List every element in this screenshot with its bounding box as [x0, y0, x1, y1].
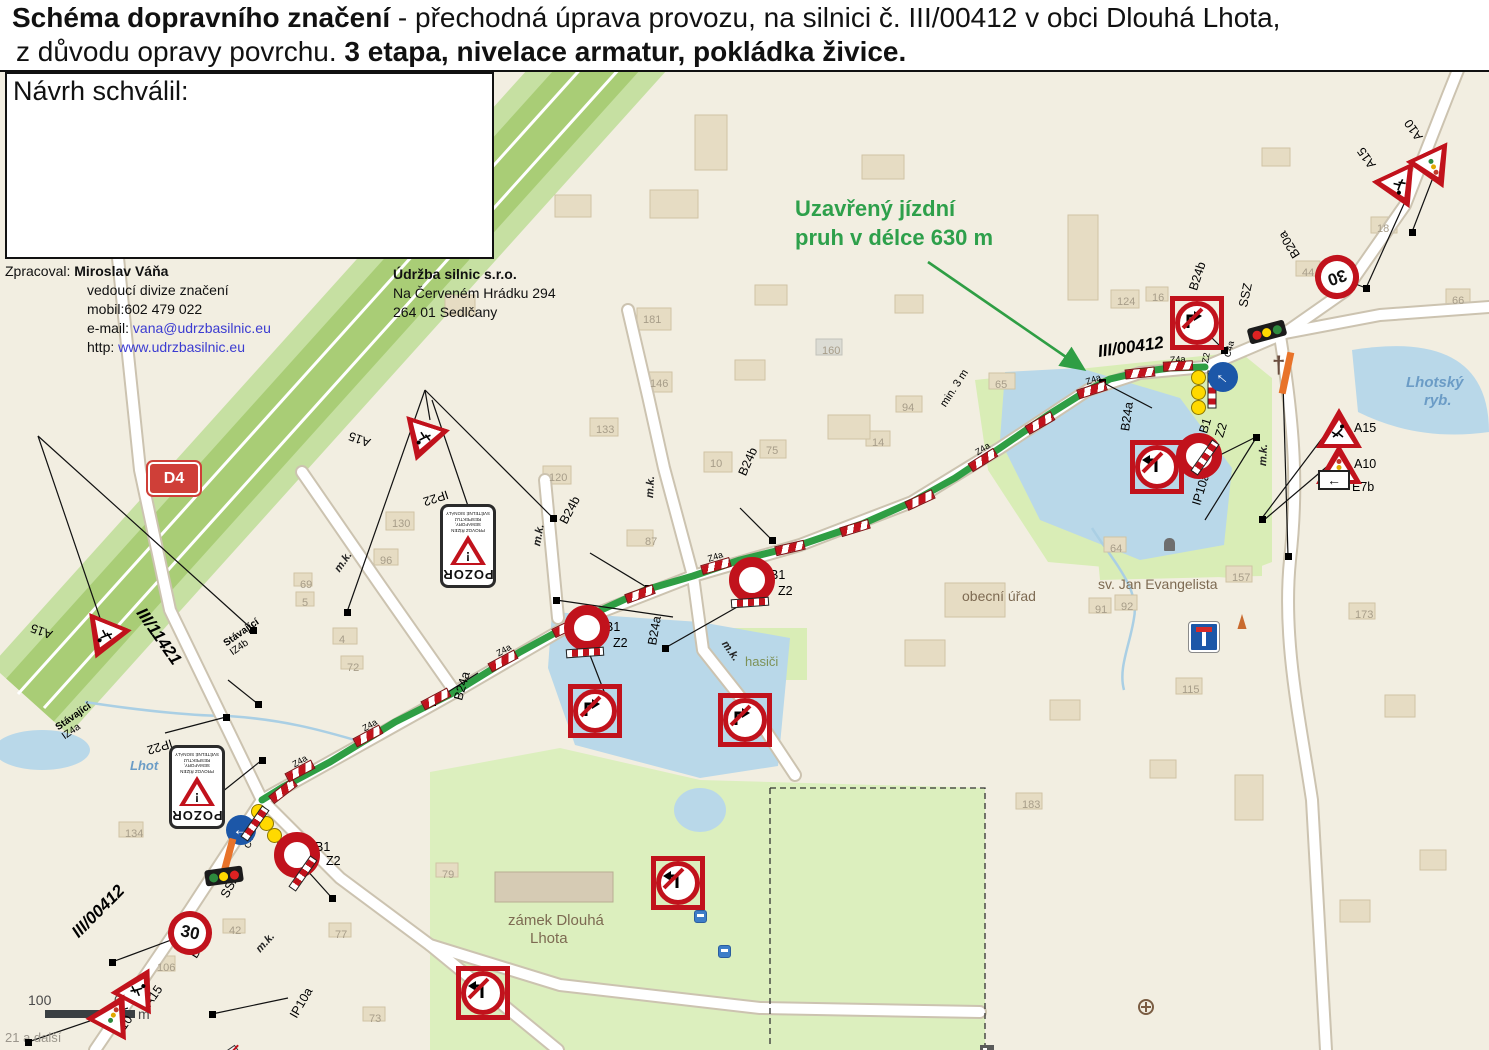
- sign-ip10a: [1189, 622, 1219, 652]
- company-block: Údržba silnic s.r.o. Na Červeném Hrádku …: [393, 265, 556, 322]
- roadworks-icon: [1330, 424, 1348, 438]
- arrow-icon: ←: [1327, 472, 1341, 488]
- church-icon: [1138, 999, 1154, 1015]
- building-number: 65: [995, 379, 1007, 391]
- building-number: 146: [650, 378, 668, 390]
- poi-stream-name: Lhot: [130, 758, 158, 773]
- road-label-mk: m.k.: [1257, 444, 1270, 467]
- closure-annotation: Uzavřený jízdní pruh v délce 630 m: [795, 194, 993, 252]
- barrier-z4: [1163, 360, 1193, 372]
- closure-arrow: [928, 262, 1082, 368]
- leader-node: [223, 714, 230, 721]
- sign-label-z2: Z2: [326, 854, 341, 868]
- arrow-icon: ←: [1210, 364, 1236, 390]
- yield-triangle-icon: !: [450, 535, 486, 565]
- building-number: 160: [822, 345, 840, 357]
- road-label-mk: m.k.: [644, 476, 657, 499]
- poi-pond-name: Lhotský: [1406, 374, 1464, 391]
- poi-pond-name: ryb.: [1424, 392, 1452, 409]
- leader-node: [25, 1039, 32, 1046]
- building-number: 92: [1121, 601, 1133, 613]
- building-number: 106: [157, 962, 175, 974]
- leader-node: [1363, 285, 1370, 292]
- poi-other-numbers: 21 a další: [5, 1030, 61, 1045]
- building-number: 94: [902, 402, 914, 414]
- sign-b24a: [1130, 440, 1184, 494]
- building-number: 120: [549, 472, 567, 484]
- portable-signal-icon: [1191, 370, 1206, 385]
- web-link[interactable]: www.udrzbasilnic.eu: [118, 339, 245, 355]
- leader-node: [344, 609, 351, 616]
- sign-label-z2: Z2: [778, 584, 793, 598]
- building-number: 73: [369, 1013, 381, 1025]
- building-number: 134: [125, 828, 143, 840]
- leader-node: [255, 701, 262, 708]
- building-number: 115: [1182, 684, 1200, 696]
- building-number: 69: [300, 579, 312, 591]
- building-number: 133: [596, 424, 614, 436]
- company-street: Na Červeném Hrádku 294: [393, 284, 556, 303]
- municipal-office-icon: [980, 1045, 994, 1050]
- traffic-scheme-page: 30 ← ← † POZOR ! PROVOZ ŘÍZEN SEMAFOR: [0, 0, 1489, 1050]
- building-number: 16: [1152, 292, 1164, 304]
- web-label: http:: [87, 339, 114, 355]
- leader-node: [259, 757, 266, 764]
- poi-castle-name: zámek Dlouhá: [508, 912, 604, 929]
- building-number: 124: [1117, 296, 1135, 308]
- building-number: 14: [872, 437, 884, 449]
- building-number: 18: [1377, 223, 1389, 235]
- sign-c4a: ←: [1208, 362, 1238, 392]
- building-number: 5: [302, 597, 308, 609]
- sign-ip22: POZOR ! PROVOZ ŘÍZEN SEMAFORY, RESPEKTUJ…: [440, 504, 496, 588]
- poi-fire-station: hasiči: [745, 654, 778, 669]
- sign-ip22: POZOR ! PROVOZ ŘÍZEN SEMAFORY, RESPEKTUJ…: [169, 745, 225, 829]
- building-number: 10: [710, 458, 722, 470]
- leader-node: [1409, 229, 1416, 236]
- leader-node: [250, 627, 257, 634]
- portable-signal-icon: [1191, 400, 1206, 415]
- building-number: 96: [380, 555, 392, 567]
- bus-stop-icon: [694, 910, 707, 923]
- building-number: 42: [229, 925, 241, 937]
- no-right-turn-icon: [1178, 304, 1206, 332]
- leader-node: [553, 597, 560, 604]
- building-number: 79: [442, 869, 454, 881]
- poi-church-name: sv. Jan Evangelista: [1098, 576, 1218, 592]
- building-number: 183: [1022, 799, 1040, 811]
- bus-stop-icon: [718, 945, 731, 958]
- company-name: Údržba silnic s.r.o.: [393, 265, 556, 284]
- company-city: 264 01 Sedlčany: [393, 303, 556, 322]
- sign-a15: [1316, 408, 1362, 448]
- approval-label: Návrh schválil:: [13, 76, 189, 107]
- leader-node: [1259, 516, 1266, 523]
- building-number: 4: [339, 634, 345, 646]
- sign-b24b: [1170, 296, 1224, 350]
- building-number: 181: [643, 314, 661, 326]
- author-role: vedoucí divize značení: [87, 281, 271, 300]
- leader-node: [550, 515, 557, 522]
- leader-node: [662, 645, 669, 652]
- building-number: 75: [766, 445, 778, 457]
- building-number: 91: [1095, 604, 1107, 616]
- leader-node: [1285, 553, 1292, 560]
- author-block: Zpracoval: Miroslav Váňa vedoucí divize …: [5, 262, 271, 357]
- building-number: 157: [1232, 572, 1250, 584]
- sign-e7b: ←: [1318, 470, 1350, 490]
- title-bar: Schéma dopravního značení - přechodná úp…: [0, 0, 1489, 72]
- author-mobile: mobil:602 479 022: [87, 300, 271, 319]
- sign-b24a: [651, 856, 705, 910]
- pozor-text: POZOR: [442, 567, 493, 582]
- page-title-line1: Schéma dopravního značení - přechodná úp…: [12, 2, 1280, 34]
- building-number: 66: [1452, 295, 1464, 307]
- page-title-line2: z důvodu opravy povrchu. 3 etapa, nivela…: [16, 36, 906, 68]
- leader-node: [109, 959, 116, 966]
- sign-b24b: [718, 693, 772, 747]
- poi-castle-name: Lhota: [530, 930, 568, 947]
- no-left-turn-icon: [1138, 448, 1166, 476]
- sign-b24a: [456, 966, 510, 1020]
- monument-icon: [1164, 538, 1175, 551]
- sign-b1: [564, 605, 610, 651]
- building-number: 44: [1302, 267, 1314, 279]
- leader-node: [769, 537, 776, 544]
- building-number: 64: [1110, 543, 1122, 555]
- sign-b1: [274, 832, 320, 878]
- author-prefix: Zpracoval:: [5, 263, 70, 279]
- building-number: 173: [1355, 609, 1373, 621]
- building-number: 77: [335, 929, 347, 941]
- leader-node: [209, 1011, 216, 1018]
- portable-signal-icon: [1191, 385, 1206, 400]
- sign-b24b: [568, 684, 622, 738]
- author-name: Miroslav Váňa: [74, 263, 168, 279]
- building-number: 130: [392, 518, 410, 530]
- approval-box: Návrh schválil:: [5, 72, 494, 259]
- building-number: 72: [347, 662, 359, 674]
- leader-node: [329, 895, 336, 902]
- leader-node: [1253, 434, 1260, 441]
- sign-label-z2: Z2: [1200, 352, 1212, 364]
- building-number: 87: [645, 536, 657, 548]
- d4-highway-shield: D4: [148, 462, 200, 495]
- poi-office-name: obecní úřad: [962, 588, 1036, 604]
- email-link[interactable]: vana@udrzbasilnic.eu: [133, 320, 271, 336]
- sign-label-z2: Z2: [613, 636, 628, 650]
- email-label: e-mail:: [87, 320, 129, 336]
- scale-label-left: 100: [28, 992, 51, 1008]
